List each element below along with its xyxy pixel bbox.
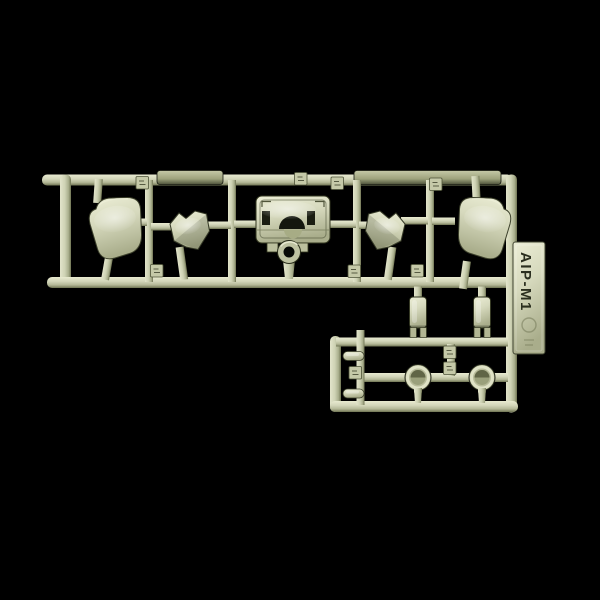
part-capsule-bottom — [343, 389, 364, 398]
stem — [151, 223, 171, 231]
thick-rail-segment — [157, 171, 223, 185]
photo-canvas: AIP-M1 — [0, 0, 600, 600]
sprue-label-text: AIP-M1 — [517, 252, 534, 312]
part-number-tag — [430, 178, 443, 191]
stem — [234, 221, 258, 229]
part-number-tag — [136, 177, 149, 190]
part-number-tag — [444, 346, 457, 359]
lower-left-rail — [330, 336, 341, 412]
part-number-tag — [348, 265, 361, 278]
part-number-tag — [444, 362, 457, 375]
part-number-tag — [349, 367, 362, 380]
stem — [432, 218, 455, 226]
stem — [93, 179, 103, 203]
vertical-runner-2 — [228, 180, 236, 282]
stem — [328, 221, 356, 229]
part-number-tag — [411, 265, 424, 278]
part-number-tag — [295, 173, 308, 186]
part-capsule-top — [343, 352, 364, 361]
vertical-runner-4 — [426, 180, 434, 282]
sprue-label-tab: AIP-M1 — [513, 242, 545, 354]
left-rail — [60, 175, 71, 288]
sprue-photograph: AIP-M1 — [0, 0, 600, 600]
part-number-tag — [151, 265, 164, 278]
stem — [471, 176, 480, 200]
part-number-tag — [331, 177, 344, 190]
upper-bottom-rail — [47, 277, 512, 288]
